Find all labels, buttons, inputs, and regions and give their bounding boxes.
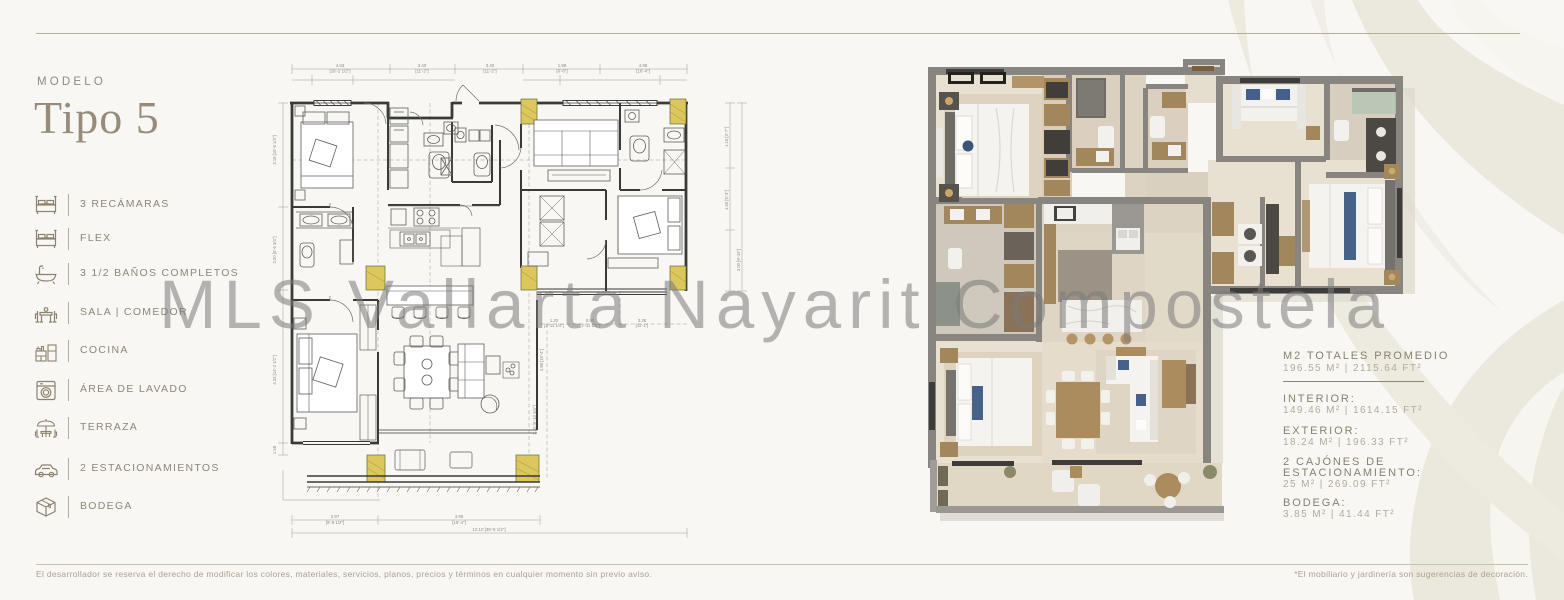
svg-text:[16'-4"]: [16'-4"] — [636, 69, 650, 74]
svg-text:1.10 [3'-7"]: 1.10 [3'-7"] — [724, 127, 729, 147]
svg-text:4.98: 4.98 — [639, 63, 648, 68]
svg-text:4.93: 4.93 — [336, 63, 345, 68]
svg-text:3.40: 3.40 — [486, 63, 495, 68]
svg-text:3.19 [10'-5 1/2"]: 3.19 [10'-5 1/2"] — [272, 135, 277, 164]
svg-text:4.33 [14'-2 1/2"]: 4.33 [14'-2 1/2"] — [272, 355, 277, 384]
svg-text:[16'-4"]: [16'-4"] — [452, 520, 466, 525]
svg-text:1.98: 1.98 — [558, 63, 567, 68]
svg-text:3.40: 3.40 — [418, 63, 427, 68]
svg-text:4.96: 4.96 — [455, 514, 464, 519]
svg-text:1.60 [5'-3"]: 1.60 [5'-3"] — [724, 190, 729, 210]
svg-text:4.98 [16'-4"]: 4.98 [16'-4"] — [539, 349, 544, 371]
svg-text:2.97: 2.97 — [331, 514, 340, 519]
svg-text:2.00 [6'-6 3/4"]: 2.00 [6'-6 3/4"] — [272, 237, 277, 264]
svg-text:[9'-9 1/2"]: [9'-9 1/2"] — [326, 520, 345, 525]
svg-text:1.58: 1.58 — [272, 445, 277, 454]
svg-text:[16'-2 1/2"]: [16'-2 1/2"] — [330, 69, 351, 74]
svg-text:[11'-2"]: [11'-2"] — [415, 69, 428, 74]
svg-text:[11'-2"]: [11'-2"] — [483, 69, 496, 74]
svg-text:[6'-6"]: [6'-6"] — [556, 69, 567, 74]
svg-text:12.10 [39'-8 1/2"]: 12.10 [39'-8 1/2"] — [472, 527, 505, 532]
